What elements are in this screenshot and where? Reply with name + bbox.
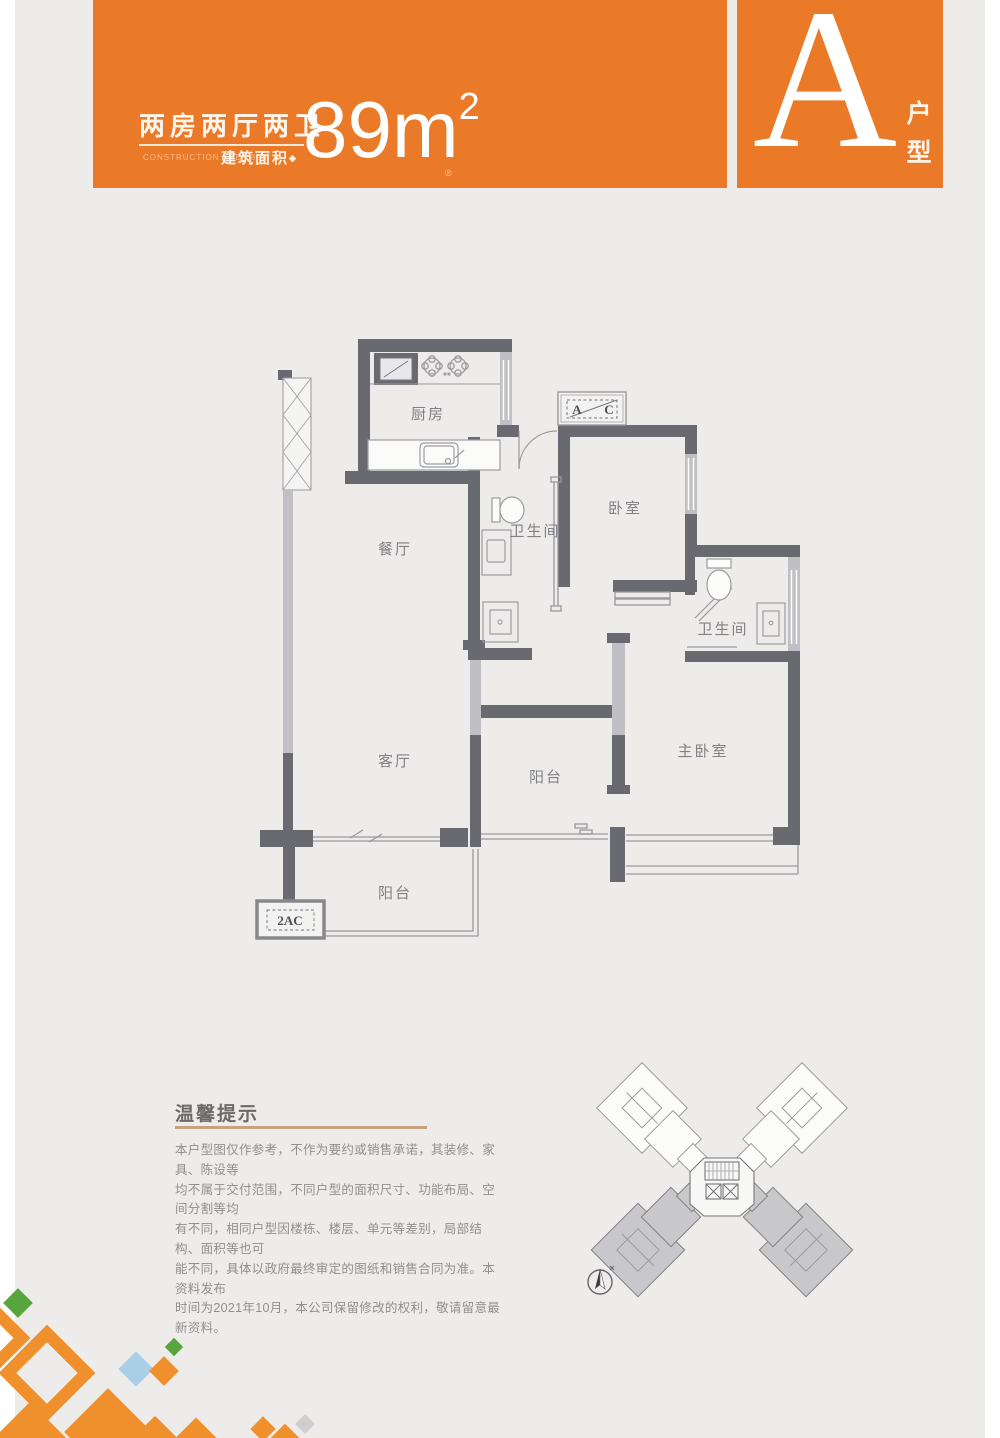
room-label-living: 客厅: [378, 753, 412, 770]
banner-unit-badge: A 户型: [737, 0, 943, 188]
room-label-balcony-side: 阳台: [529, 769, 563, 786]
tips-line: 本户型图仅作参考，不作为要约或销售承诺，其装修、家具、陈设等: [175, 1141, 505, 1181]
ac-label-c: C: [604, 402, 613, 417]
ac-label-a: A: [572, 402, 582, 417]
area-label-text: 建筑面积: [221, 150, 289, 167]
tower-wing-ne: [735, 1063, 847, 1175]
room-label-bath2: 卫生间: [697, 621, 748, 638]
banner-area-value: 89m2: [303, 88, 480, 170]
area-superscript: 2: [459, 86, 480, 128]
kitchen-counter: [368, 440, 500, 470]
right-margin: [985, 0, 1000, 1438]
ac-platform-box: 2AC: [257, 901, 324, 938]
ac-platform-label: 2AC: [277, 913, 302, 928]
duct-shaft: [278, 370, 311, 490]
site-key-plan: [572, 1058, 872, 1314]
registered-mark: ®: [445, 168, 452, 178]
stove-burners-icon: [422, 356, 468, 376]
toilet-icon: [707, 559, 731, 568]
bath1-fixtures: [482, 497, 524, 642]
tips-line: 有不同，相同户型因楼栋、楼层、单元等差别，局部结构、面积等也可: [175, 1220, 505, 1260]
tower-wing-nw: [597, 1063, 709, 1175]
ac-unit-box: A C: [558, 392, 626, 425]
floorplan-poster: { "banner": { "title": "两房两厅两卫", "subtit…: [0, 0, 1000, 1438]
floorplan-drawing: A C 2AC 厨房 餐厅 卫生间 卧室 卫生间 主卧室 客厅 阳台 阳台: [250, 330, 810, 950]
room-label-bedroom: 卧室: [608, 500, 642, 517]
room-label-master: 主卧室: [677, 743, 728, 760]
diamond-shapes: [0, 1288, 315, 1438]
tips-underline: [175, 1126, 427, 1129]
unit-type-label: 户型: [899, 100, 935, 178]
room-label-balcony-rear: 阳台: [378, 885, 412, 902]
area-number: 89m: [303, 85, 459, 174]
decor-diamonds: [0, 1272, 346, 1438]
room-label-dining: 餐厅: [378, 541, 412, 558]
compass-icon: [588, 1266, 614, 1294]
tips-line: 均不属于交付范围，不同户型的面积尺寸、功能布局、空间分割等均: [175, 1181, 505, 1221]
tower-core: [690, 1158, 754, 1216]
room-label-bath1: 卫生间: [509, 523, 560, 540]
banner-underline: [139, 144, 304, 146]
banner-area-label: 建筑面积◆: [221, 147, 298, 168]
banner-title: 两房两厅两卫: [139, 106, 325, 143]
tips-title: 温馨提示: [175, 1099, 259, 1126]
left-margin: [0, 0, 15, 1438]
unit-letter: A: [745, 0, 905, 186]
diamond-icon: ◆: [289, 153, 298, 163]
toilet-icon: [492, 498, 500, 522]
room-label-kitchen: 厨房: [411, 406, 445, 423]
banner-left: 两房两厅两卫 CONSTRUCTION AREA 89㎡ 建筑面积◆ 89m2 …: [93, 0, 727, 188]
